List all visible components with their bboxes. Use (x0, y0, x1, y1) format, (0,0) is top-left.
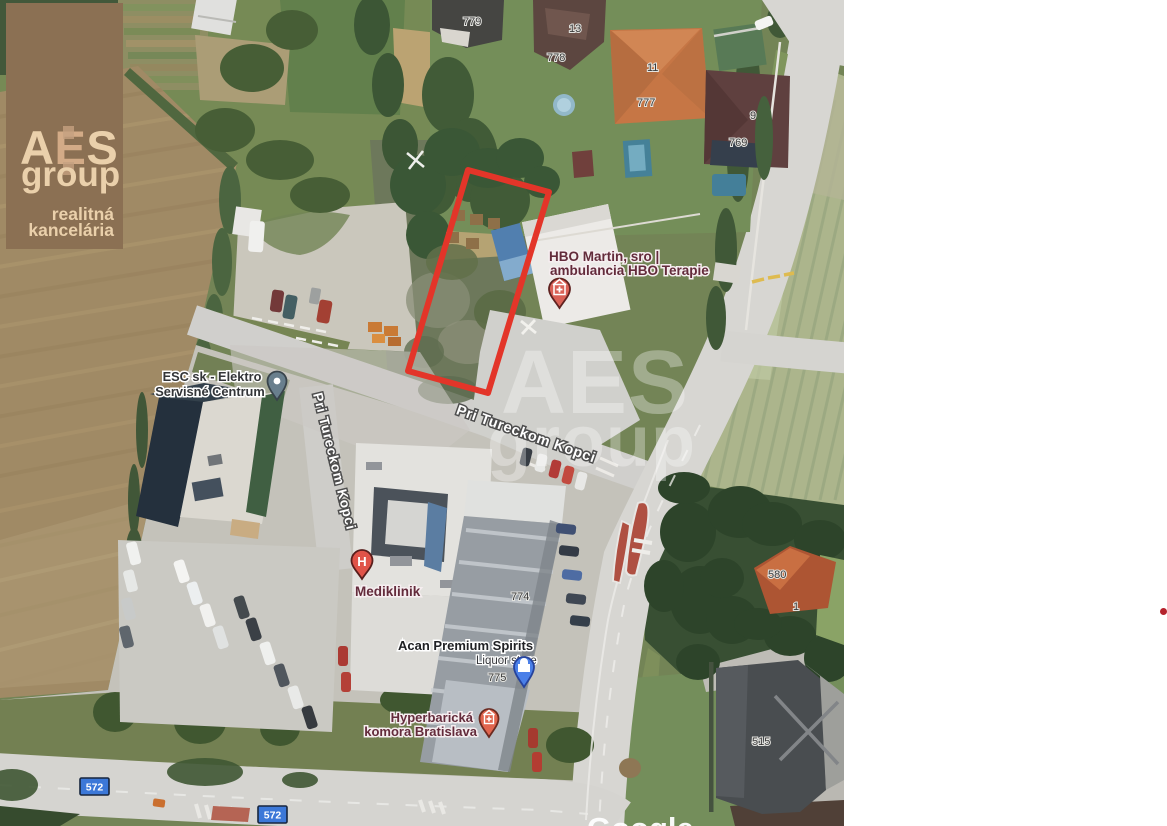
svg-text:HBO Martin, sro |: HBO Martin, sro | (549, 249, 659, 264)
svg-text:group: group (487, 402, 696, 482)
svg-text:769: 769 (729, 137, 747, 149)
svg-text:515: 515 (752, 736, 770, 748)
svg-text:Acan Premium Spirits: Acan Premium Spirits (398, 638, 533, 653)
svg-text:H: H (357, 554, 366, 569)
svg-text:775: 775 (488, 672, 506, 684)
svg-text:ESC sk - Elektro: ESC sk - Elektro (163, 369, 262, 384)
svg-text:572: 572 (264, 810, 282, 822)
svg-text:kancelária: kancelária (28, 220, 114, 240)
svg-text:778: 778 (547, 52, 565, 64)
svg-text:Servisné Centrum: Servisné Centrum (155, 384, 265, 399)
svg-text:Google: Google (587, 811, 694, 826)
svg-text:group: group (21, 155, 120, 194)
svg-text:11: 11 (647, 62, 658, 74)
svg-text:774: 774 (511, 591, 529, 603)
svg-text:777: 777 (637, 97, 655, 109)
svg-text:1: 1 (793, 601, 799, 613)
svg-text:572: 572 (86, 782, 104, 794)
svg-text:580: 580 (768, 569, 786, 581)
svg-text:Mediklinik: Mediklinik (355, 584, 421, 599)
svg-text:ambulancia HBO Terapie: ambulancia HBO Terapie (550, 263, 709, 278)
svg-text:779: 779 (463, 16, 481, 28)
svg-text:komora Bratislava: komora Bratislava (364, 724, 477, 739)
svg-text:9: 9 (750, 110, 756, 122)
svg-text:Hyperbarická: Hyperbarická (391, 710, 474, 725)
svg-text:13: 13 (569, 23, 581, 35)
